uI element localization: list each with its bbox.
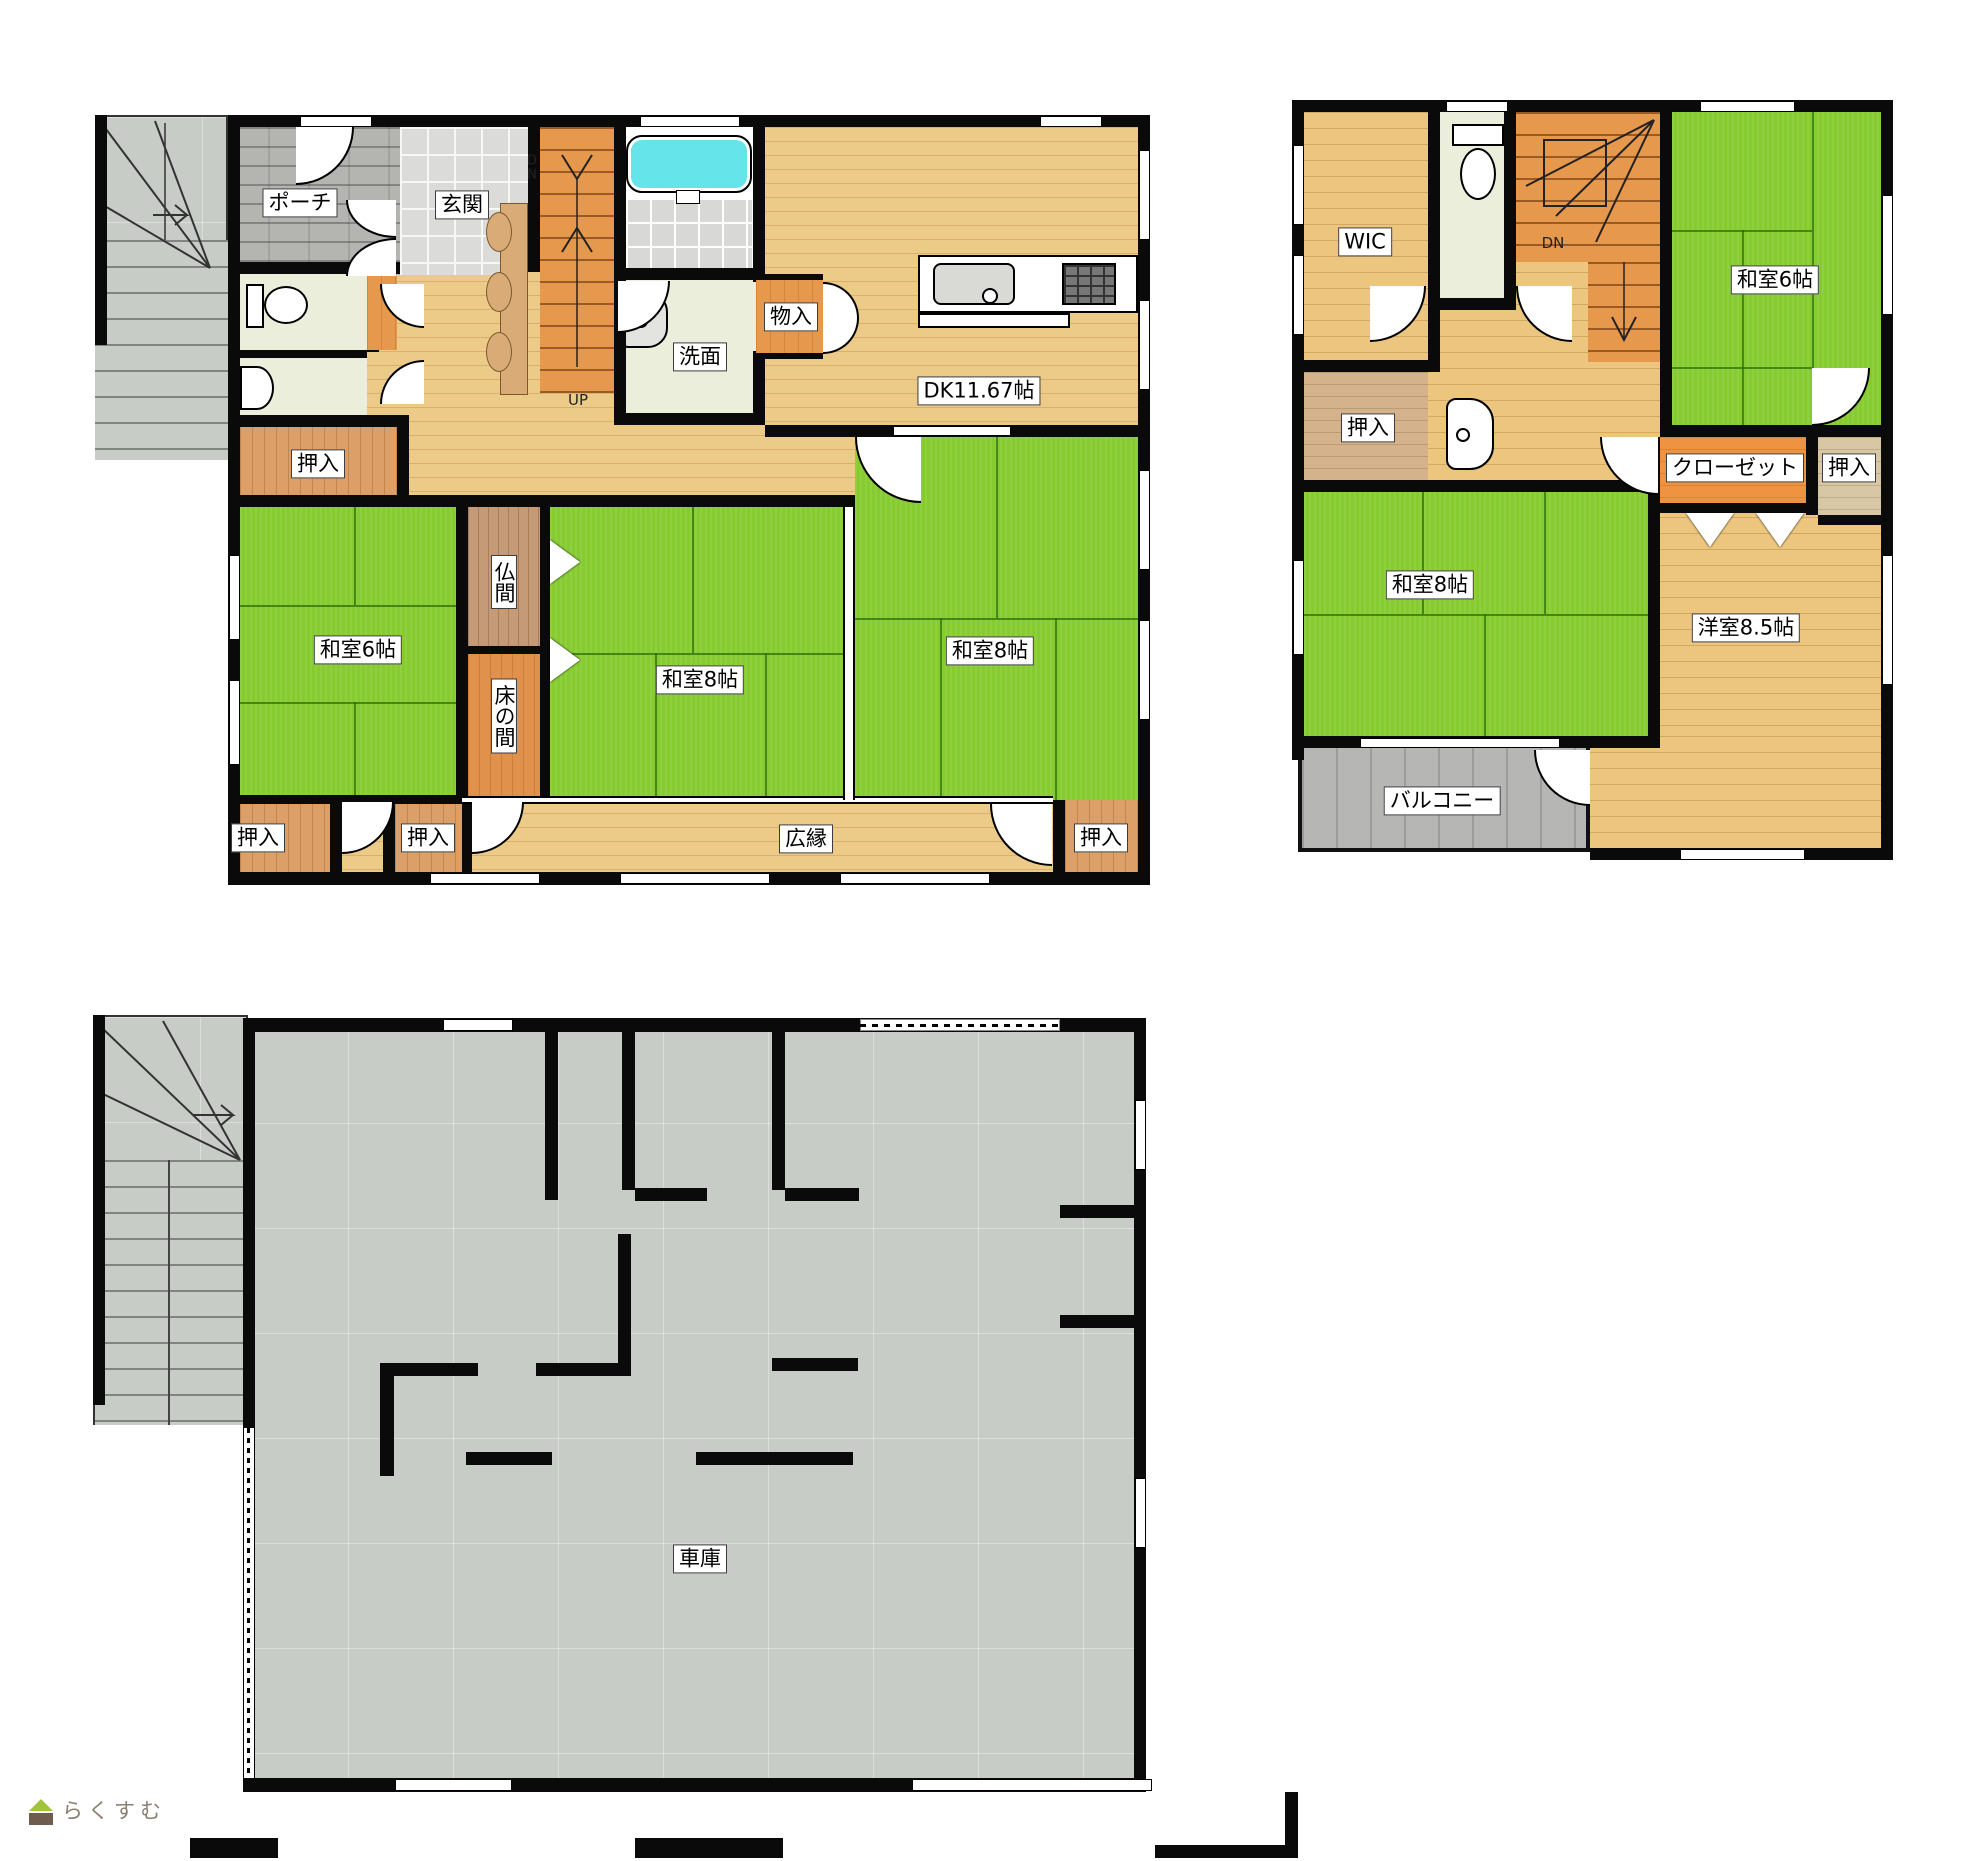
wall [228,115,240,885]
balcony-label: バルコニー [1384,786,1501,815]
wall [240,495,855,507]
shoe-cabinet-bump [486,212,512,252]
window [1293,145,1304,225]
fusuma-marker [550,540,580,584]
kitchen-sink [933,263,1015,305]
wall [1053,800,1065,872]
garage-shutter-dots [247,1428,250,1778]
window [430,873,540,884]
bathroom-tile-floor [626,198,752,270]
wall [228,350,367,358]
window [912,1779,1152,1791]
kitchen-faucet [982,288,998,304]
washitsu8-center-room [540,507,843,800]
logo-text: らくすむ [62,1795,166,1825]
wic-label: WIC [1338,227,1392,256]
washitsu6-2f-label: 和室6帖 [1731,265,1819,294]
wall [614,268,765,280]
window [229,555,240,640]
window [300,116,372,127]
closet-2f-left-label: 押入 [1341,413,1395,442]
wall [635,1188,707,1201]
window [1139,150,1150,240]
wall [1504,112,1516,310]
window [443,1019,513,1031]
basin2-icon [1446,398,1494,470]
washitsu8-center-label: 和室8帖 [656,665,744,694]
wall [1818,515,1893,525]
wall [772,1358,858,1371]
window [1139,620,1150,720]
dk-label: DK11.67帖 [917,376,1040,405]
floorplan-canvas: ポーチ 玄関 D N UP 洗面 物入 DK11.67帖 押入 和室6帖 仏間 … [0,0,1985,1861]
western-room-lobe [1590,736,1881,848]
wall [1428,112,1440,372]
window [1882,195,1893,315]
wall [1304,480,1660,492]
corner-basin-icon [240,366,274,410]
toilet-tank [246,284,264,328]
window [1139,300,1150,390]
fusuma-marker [550,638,580,682]
toilet2-tank [1452,124,1504,146]
window [1040,116,1102,127]
wall [696,1452,853,1465]
window [893,426,1011,436]
window [1139,470,1150,570]
wall [1440,298,1516,310]
window [1293,560,1304,655]
window [840,873,990,884]
closet-bl-label: 押入 [231,823,285,852]
closet-2f-right-label: 押入 [1822,453,1876,482]
veranda-label: 広縁 [779,824,833,853]
garage-top-dots [860,1024,1060,1027]
wall [466,1452,552,1465]
window [620,873,770,884]
wall [753,115,765,280]
wall [190,1838,278,1858]
butsuma-label: 仏間 [491,555,517,609]
wall [536,1363,631,1376]
bathtub [626,135,752,193]
wall [93,1015,105,1405]
kitchen-stove [1062,263,1116,305]
window [1360,738,1560,748]
window [1293,255,1304,335]
wall [1660,425,1893,437]
storage-label: 物入 [764,302,818,331]
wall [635,1838,783,1858]
fusuma-marker [1756,513,1804,547]
wall [397,415,409,507]
house-icon [28,1799,54,1825]
wall [456,646,550,654]
porch-label: ポーチ [263,188,338,217]
wall [462,800,472,872]
wall [380,1376,394,1476]
window [1882,555,1893,685]
wall [1285,1792,1298,1858]
shoe-cabinet-bump [486,272,512,312]
closet-2f-label: クローゼット [1666,453,1804,482]
garage-floor [243,1018,1146,1792]
wall [1304,360,1440,372]
washitsu6-label: 和室6帖 [314,635,402,664]
wall [1660,503,1806,513]
wall [1292,100,1893,112]
tokonoma-label: 床の間 [491,679,517,754]
wall [95,115,107,345]
garage-stairs-fan [93,1015,248,1425]
garage-label: 車庫 [673,1544,727,1573]
wall [528,115,540,272]
wall [228,415,409,427]
dn2-label: DN [1542,234,1565,252]
window [1680,849,1805,860]
wall [380,1363,478,1376]
washroom-label: 洗面 [673,342,727,371]
window [640,116,740,127]
toilet-bowl [264,286,308,324]
window [1135,1478,1146,1548]
closet-br-label: 押入 [1074,823,1128,852]
washitsu8-right-label: 和室8帖 [946,636,1034,665]
wall [772,1032,785,1190]
closet-top-label: 押入 [291,449,345,478]
washitsu8-2f-room [1304,492,1648,736]
wall [1806,437,1818,515]
closet-bm-label: 押入 [401,823,455,852]
wall [618,1234,631,1363]
staircase-arrows [540,127,614,393]
basin2-faucet [1456,428,1470,442]
wall [622,1032,635,1190]
wall [330,800,342,872]
wall [1660,112,1672,437]
western-room-label: 洋室8.5帖 [1692,613,1800,642]
wall [785,1188,859,1201]
entrance-label: 玄関 [435,190,489,219]
window [1700,101,1795,112]
site-logo: らくすむ [28,1795,166,1825]
dn-label: D N [527,154,537,181]
window [229,680,240,765]
bathtub-drain [676,190,700,204]
wall [1060,1205,1134,1218]
toilet2-bowl [1460,148,1496,200]
kitchen-counter-lower [918,313,1070,328]
wall [1155,1845,1298,1858]
up-label: UP [568,391,588,409]
window [395,1779,512,1791]
shoe-cabinet-bump [486,332,512,372]
wall [243,1018,255,1428]
fusuma-marker [1686,513,1734,547]
window [1446,101,1508,112]
wall [614,413,765,425]
shoji-track [462,796,1053,804]
wall [545,1032,558,1200]
window [1135,1100,1146,1170]
wall [1060,1315,1134,1328]
exterior-stairs-fan [95,115,228,460]
washitsu8-2f-label: 和室8帖 [1386,570,1474,599]
sliding-divider [843,507,855,800]
